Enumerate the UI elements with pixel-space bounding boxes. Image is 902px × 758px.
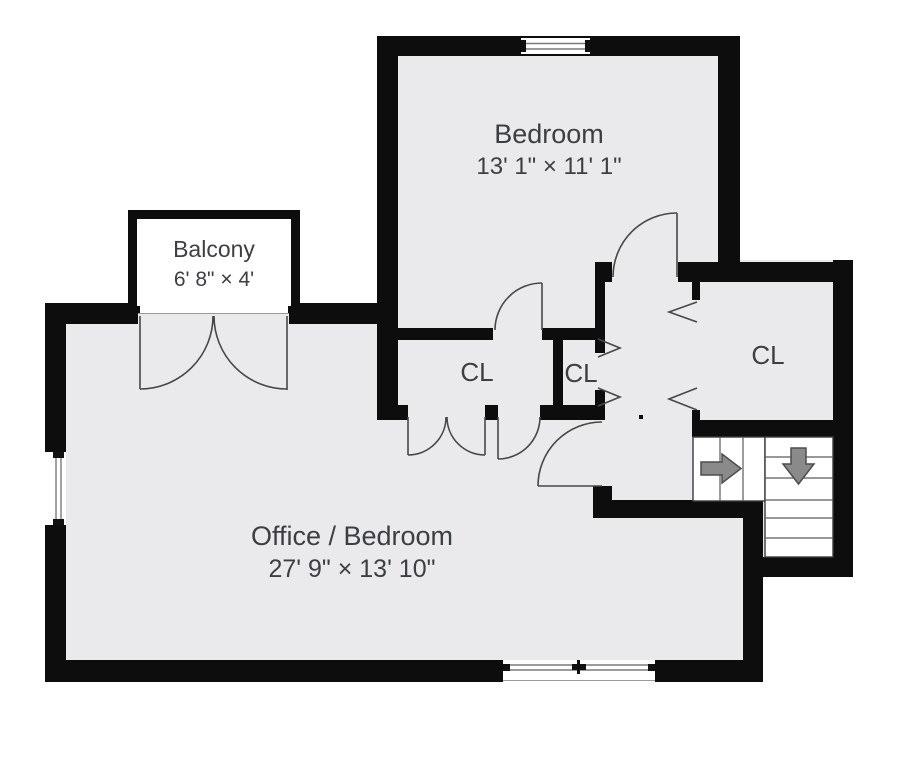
office-bottom-window	[503, 660, 655, 682]
balcony-wall-left	[128, 210, 137, 316]
office-floor	[45, 303, 763, 682]
balcony-wall-stub-right	[288, 306, 300, 314]
wall-office-bottom	[45, 660, 763, 682]
opening-closet-right-bifold	[692, 300, 700, 410]
bedroom-window	[521, 38, 590, 54]
office-left-window	[45, 452, 66, 525]
balcony-wall-right	[291, 210, 300, 316]
balcony-dimensions: 6' 8" × 4'	[174, 268, 254, 291]
office-label: Office / Bedroom	[251, 521, 453, 551]
closet-middle-label: CL	[564, 358, 597, 388]
bedroom-window-tick	[521, 40, 526, 52]
wall-stairs-top	[692, 420, 853, 437]
floor-plan-drawing: Bedroom 13' 1" × 11' 1" Balcony 6' 8" × …	[0, 0, 902, 758]
office-bottom-window-tick	[503, 664, 510, 671]
bedroom-window-tick	[585, 40, 590, 52]
office-left-window-tick	[53, 452, 64, 458]
balcony-wall-stub-left	[128, 306, 140, 314]
wall-bedroom-left	[377, 36, 398, 415]
office-bottom-window-mullion	[577, 660, 580, 674]
balcony-wall-top	[128, 210, 300, 219]
wall-bedroom-right	[718, 36, 740, 282]
bedroom-window-glass	[521, 38, 590, 54]
closet-right-label: CL	[751, 340, 784, 370]
wall-hallway-bottom	[593, 500, 763, 518]
bedroom-dimensions: 13' 1" × 11' 1"	[476, 153, 621, 180]
office-dimensions: 27' 9" × 13' 10"	[268, 555, 435, 583]
office-left-window-tick	[53, 519, 64, 525]
wall-dot	[639, 415, 643, 419]
bedroom-label: Bedroom	[494, 119, 604, 149]
balcony-floor	[130, 212, 298, 313]
wall-office-right	[743, 508, 763, 682]
opening-bedroom-closet	[493, 327, 542, 341]
wall-right-outer	[833, 260, 853, 577]
balcony-label: Balcony	[173, 236, 255, 262]
floor-plan-page: Bedroom 13' 1" × 11' 1" Balcony 6' 8" × …	[0, 0, 902, 758]
office-bottom-window-tick	[648, 664, 655, 671]
opening-closet-single	[498, 404, 540, 421]
balcony-structure	[128, 210, 300, 316]
wall-closet-divider	[553, 340, 563, 408]
opening-bedroom-door	[612, 261, 678, 283]
closet-left-label: CL	[460, 357, 493, 387]
